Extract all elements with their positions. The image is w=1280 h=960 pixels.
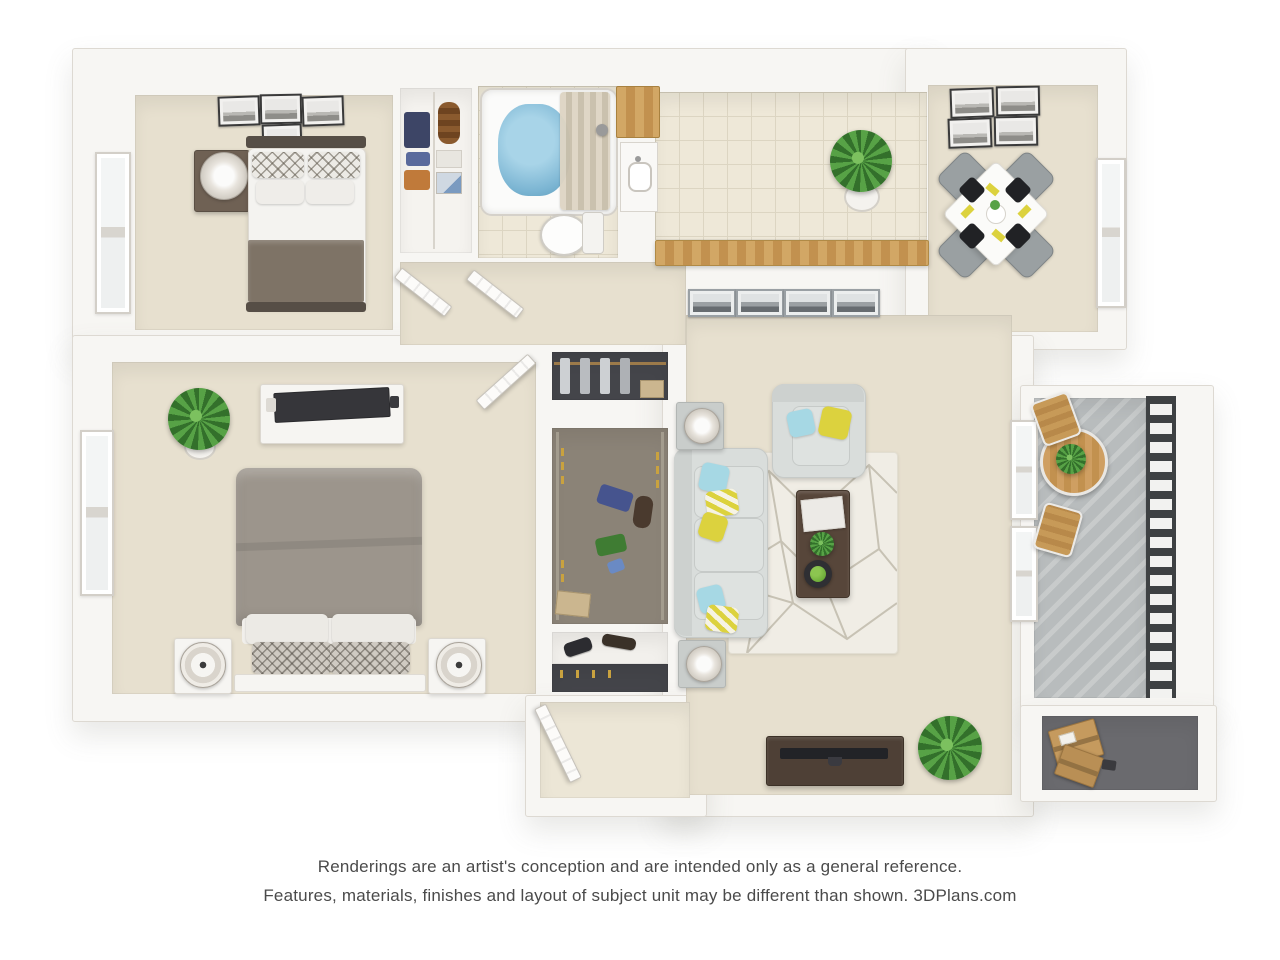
sink-faucet [635,156,641,162]
sofa-back [674,448,692,636]
hanger [561,476,564,484]
wall-art-frame [949,87,994,119]
frame-art [1001,91,1035,112]
hanging-clothes [620,358,630,394]
hanging-clothes [580,358,590,394]
accent-pillow [308,152,360,178]
panoramic-art-frame [784,289,832,317]
window-pane [1016,426,1032,514]
wall-art-frame [217,95,260,126]
hanger [592,670,595,678]
hanger [561,560,564,568]
closet-box [555,590,591,617]
bed-headboard [234,674,426,692]
toilet-bowl [540,214,588,256]
accent-pillow [330,642,410,674]
living-room-plant [918,716,982,780]
bed-blanket [248,240,364,302]
hanging-clothes [560,358,570,394]
wall-art-frame [994,116,1039,147]
closet-rod [554,362,666,365]
hanging-clothes [600,358,610,394]
folded-clothes [404,170,430,190]
window-pane [1102,164,1120,302]
frame-art [789,294,827,312]
coffee-table-plant [810,532,834,556]
shelf-box [640,380,664,398]
folded-clothes [404,112,430,148]
throw-pillow-yellow [817,405,853,441]
tv-mount [828,757,842,766]
wall-art-frame [947,117,992,149]
sleeping-pillow [246,614,328,644]
dresser-tv [273,387,390,423]
dresser-item [390,396,399,408]
stored-item [1101,759,1116,771]
frame-art [223,100,256,121]
toilet-tank [582,212,604,254]
centerpiece-plant [990,200,1000,210]
hanger [608,670,611,678]
frame-art [265,99,297,120]
panoramic-art-frame [736,289,784,317]
bed-headboard [246,136,366,148]
frame-art [741,294,779,312]
hanger [656,466,659,474]
window-pane [101,158,125,308]
frame-art [693,294,731,312]
table-lamp [436,642,482,688]
panoramic-art-frame [688,289,736,317]
box-tape [1059,758,1098,776]
kitchen-plant [830,130,892,192]
disclaimer-line-1: Renderings are an artist's conception an… [0,852,1280,881]
folded-clothes [406,152,430,166]
table-lamp [200,152,248,200]
stored-artwork [436,172,462,194]
fruit [810,566,826,582]
throw-pillow-striped [704,604,739,634]
table-lamp [684,408,720,444]
hanger [656,480,659,488]
table-lamp [180,642,226,688]
dining-window [1096,158,1126,308]
hat-box [438,102,460,144]
sleeping-pillow [256,180,304,204]
hanger [561,574,564,582]
vanity-sink [628,162,652,192]
closet-shelf-divider [433,92,435,249]
patio-plant [1056,444,1086,474]
sleeping-pillow [332,614,414,644]
magazines [800,496,845,532]
storage-bin [436,150,462,168]
wall-art-frame [996,86,1041,117]
breakfast-bar-counter [655,240,929,266]
hanger [561,462,564,470]
hanger [576,670,579,678]
throw-pillow-blue [786,408,817,439]
window-pane [1016,532,1032,616]
sleeping-pillow [306,180,354,204]
wall-art-frame [301,95,344,126]
lower-closet-rack [552,664,668,692]
bedroom1-window [95,152,131,314]
bedroom-plant [168,388,230,450]
floor-plan-rendering: Renderings are an artist's conception an… [0,0,1280,960]
panoramic-art-frame [832,289,880,317]
frame-art [307,100,340,121]
hanger [656,452,659,460]
accent-pillow [252,152,304,178]
bed-footboard [246,302,366,312]
shower-curtain [560,92,610,210]
balcony-window-upper [1010,420,1038,520]
hanger [561,448,564,456]
frame-art [953,122,988,143]
balcony-railing [1146,396,1176,698]
pantry-cabinet [616,86,660,138]
bedroom2-window [80,430,114,596]
frame-art [999,121,1033,142]
dresser-item [266,398,276,412]
armchair-back [772,384,864,402]
disclaimer: Renderings are an artist's conception an… [0,852,1280,910]
accent-pillow [252,642,332,674]
hanger [560,670,563,678]
table-lamp [686,646,722,682]
shower-head [596,124,608,136]
window-pane [86,436,108,590]
wall-art-frame [260,94,303,125]
frame-art [955,92,990,113]
closet-rod [661,432,664,620]
floor-plan [0,0,1280,960]
disclaimer-line-2: Features, materials, finishes and layout… [0,881,1280,910]
frame-art [837,294,875,312]
